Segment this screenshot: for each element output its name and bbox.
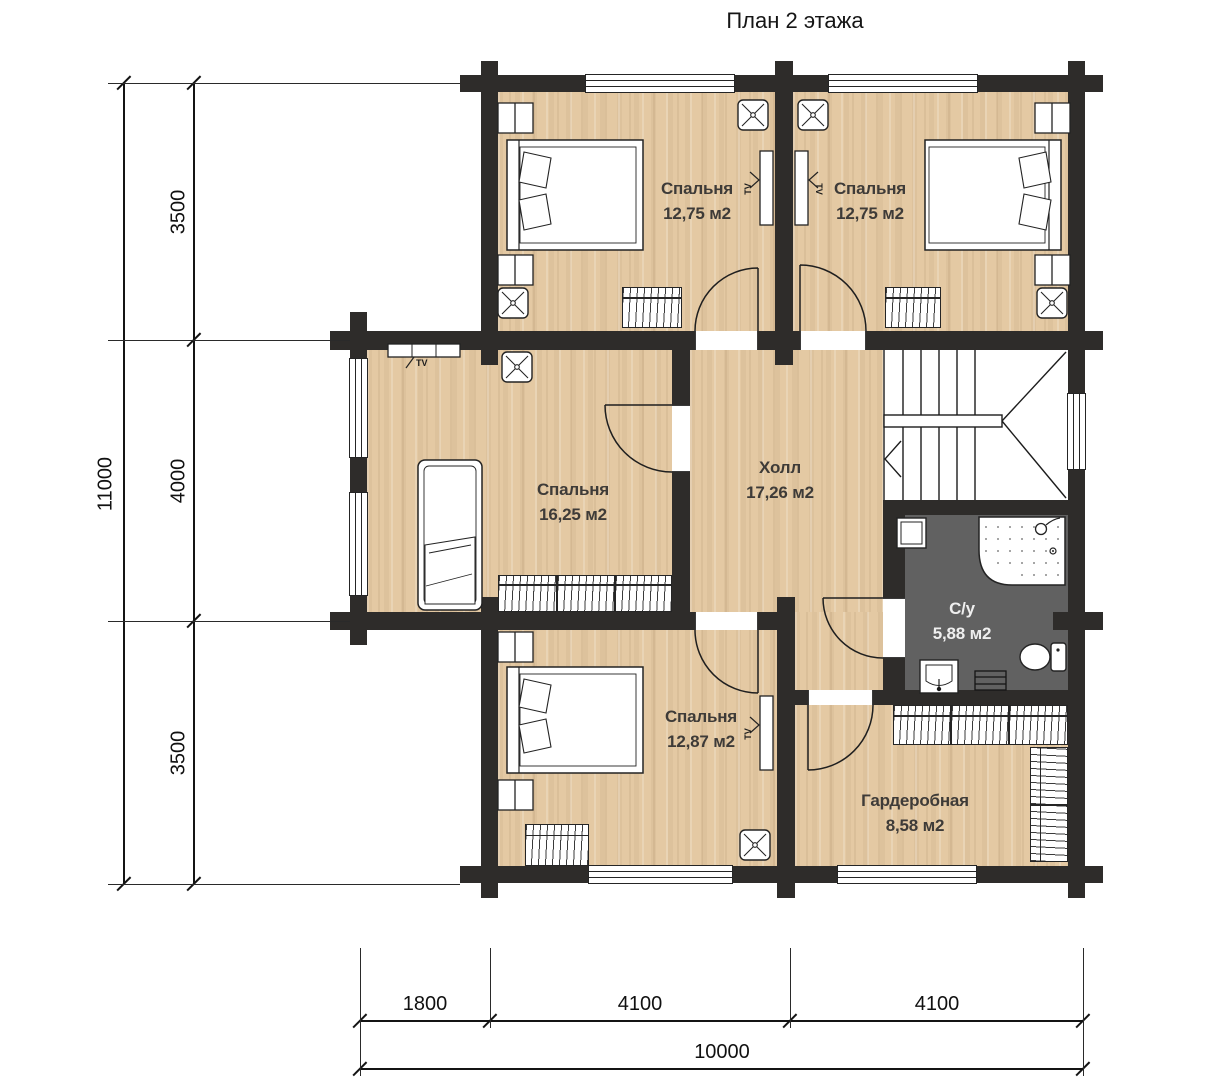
plan-title: План 2 этажа bbox=[726, 8, 863, 34]
tv-label: TV bbox=[416, 358, 428, 368]
dim-value: 4100 bbox=[915, 993, 960, 1016]
bed-icon bbox=[507, 140, 643, 250]
room-name: Холл bbox=[746, 455, 814, 480]
room-label-wardrobe: Гардеробная 8,58 м2 bbox=[861, 788, 969, 838]
room-label-hall: Холл 17,26 м2 bbox=[746, 455, 814, 505]
dim-value: 4100 bbox=[618, 993, 663, 1016]
extension-line bbox=[790, 948, 791, 1028]
room-area: 17,26 м2 bbox=[746, 480, 814, 505]
room-name: Спальня bbox=[665, 704, 737, 729]
toilet-icon bbox=[1020, 643, 1066, 671]
dim-line-bottom-total bbox=[360, 1068, 1083, 1070]
bath-cabinet-icon bbox=[897, 518, 926, 548]
room-name: Спальня bbox=[834, 176, 906, 201]
bed-icon bbox=[925, 140, 1061, 250]
door-arc bbox=[605, 265, 883, 770]
floor-plan-page: Спальня 12,75 м2 Спальня 12,75 м2 Спальн… bbox=[0, 0, 1227, 1080]
room-label-bedroom-top-right: Спальня 12,75 м2 bbox=[834, 176, 906, 226]
room-name: Гардеробная bbox=[861, 788, 969, 813]
extension-line bbox=[108, 340, 350, 341]
room-area: 12,87 м2 bbox=[665, 729, 737, 754]
dim-value: 4000 bbox=[168, 459, 191, 504]
single-bed-icon bbox=[418, 460, 482, 610]
extension-line bbox=[1083, 948, 1084, 1076]
room-area: 5,88 м2 bbox=[933, 621, 991, 646]
dim-value: 3500 bbox=[168, 190, 191, 235]
room-label-bedroom-bottom: Спальня 12,87 м2 bbox=[665, 704, 737, 754]
room-name: С/у bbox=[933, 596, 991, 621]
room-area: 12,75 м2 bbox=[661, 201, 733, 226]
room-name: Спальня bbox=[537, 477, 609, 502]
tv-label: TV bbox=[743, 183, 753, 195]
dim-value-total-width: 10000 bbox=[694, 1041, 750, 1064]
bed-icon bbox=[507, 667, 643, 773]
room-name: Спальня bbox=[661, 176, 733, 201]
sink-icon bbox=[920, 660, 958, 693]
stairs bbox=[884, 350, 1066, 500]
stairs-direction-arrow-icon bbox=[885, 441, 901, 477]
dim-value: 3500 bbox=[168, 731, 191, 776]
dim-line-bottom-segments bbox=[360, 1020, 1083, 1022]
dim-line-left-segments bbox=[193, 83, 195, 884]
tv-label: TV bbox=[743, 728, 753, 740]
plan-linework bbox=[0, 0, 1227, 1080]
room-label-bathroom: С/у 5,88 м2 bbox=[933, 596, 991, 646]
towel-rail-icon bbox=[975, 671, 1006, 690]
room-area: 16,25 м2 bbox=[537, 502, 609, 527]
extension-line bbox=[108, 621, 350, 622]
dim-value: 1800 bbox=[403, 993, 448, 1016]
shower-icon bbox=[979, 517, 1065, 585]
extension-line bbox=[490, 948, 491, 1028]
tv-label: TV bbox=[814, 183, 824, 195]
extension-line bbox=[360, 948, 361, 1076]
dim-line-left-total bbox=[123, 83, 125, 884]
room-label-bedroom-mid-left: Спальня 16,25 м2 bbox=[537, 477, 609, 527]
extension-line bbox=[108, 83, 460, 84]
room-label-bedroom-top-left: Спальня 12,75 м2 bbox=[661, 176, 733, 226]
room-area: 12,75 м2 bbox=[834, 201, 906, 226]
extension-line bbox=[108, 884, 460, 885]
room-area: 8,58 м2 bbox=[861, 813, 969, 838]
dim-value-total-height: 11000 bbox=[95, 457, 118, 511]
